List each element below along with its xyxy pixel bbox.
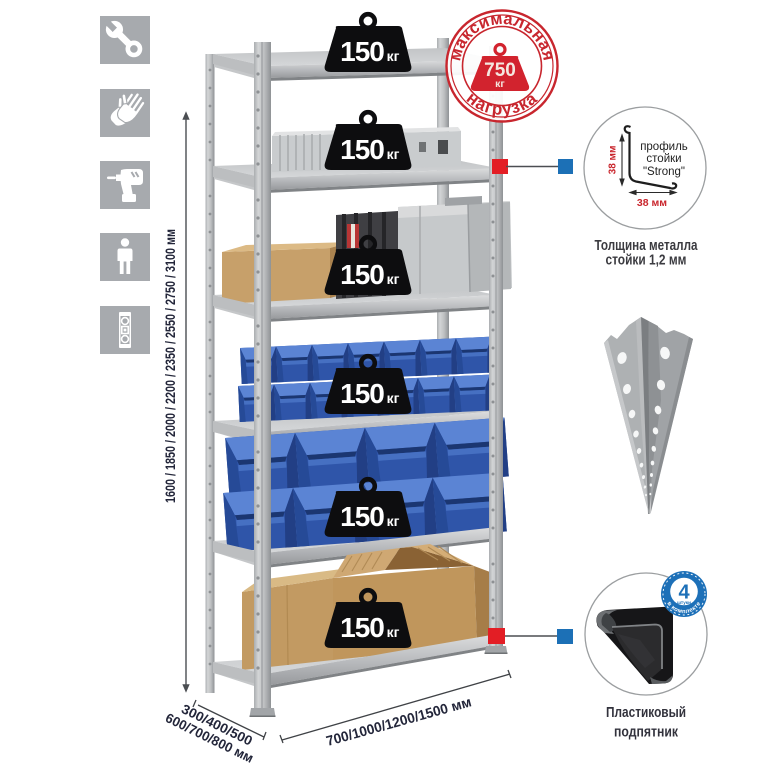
svg-text:"Strong": "Strong" [643,166,685,178]
svg-text:профиль: профиль [640,141,688,153]
svg-text:38 мм: 38 мм [608,146,619,175]
svg-text:подпятник: подпятник [614,725,679,741]
svg-text:кг: кг [495,78,505,90]
svg-text:38 мм: 38 мм [637,197,667,209]
svg-text:Пластиковый: Пластиковый [606,705,686,721]
svg-text:1600 / 1850 / 2000 / 2200 / 23: 1600 / 1850 / 2000 / 2200 / 2350 / 2550 … [163,229,178,503]
svg-text:стойки: стойки [646,153,681,165]
svg-text:стойки 1,2 мм: стойки 1,2 мм [606,253,687,269]
svg-text:штуки: штуки [677,600,691,605]
